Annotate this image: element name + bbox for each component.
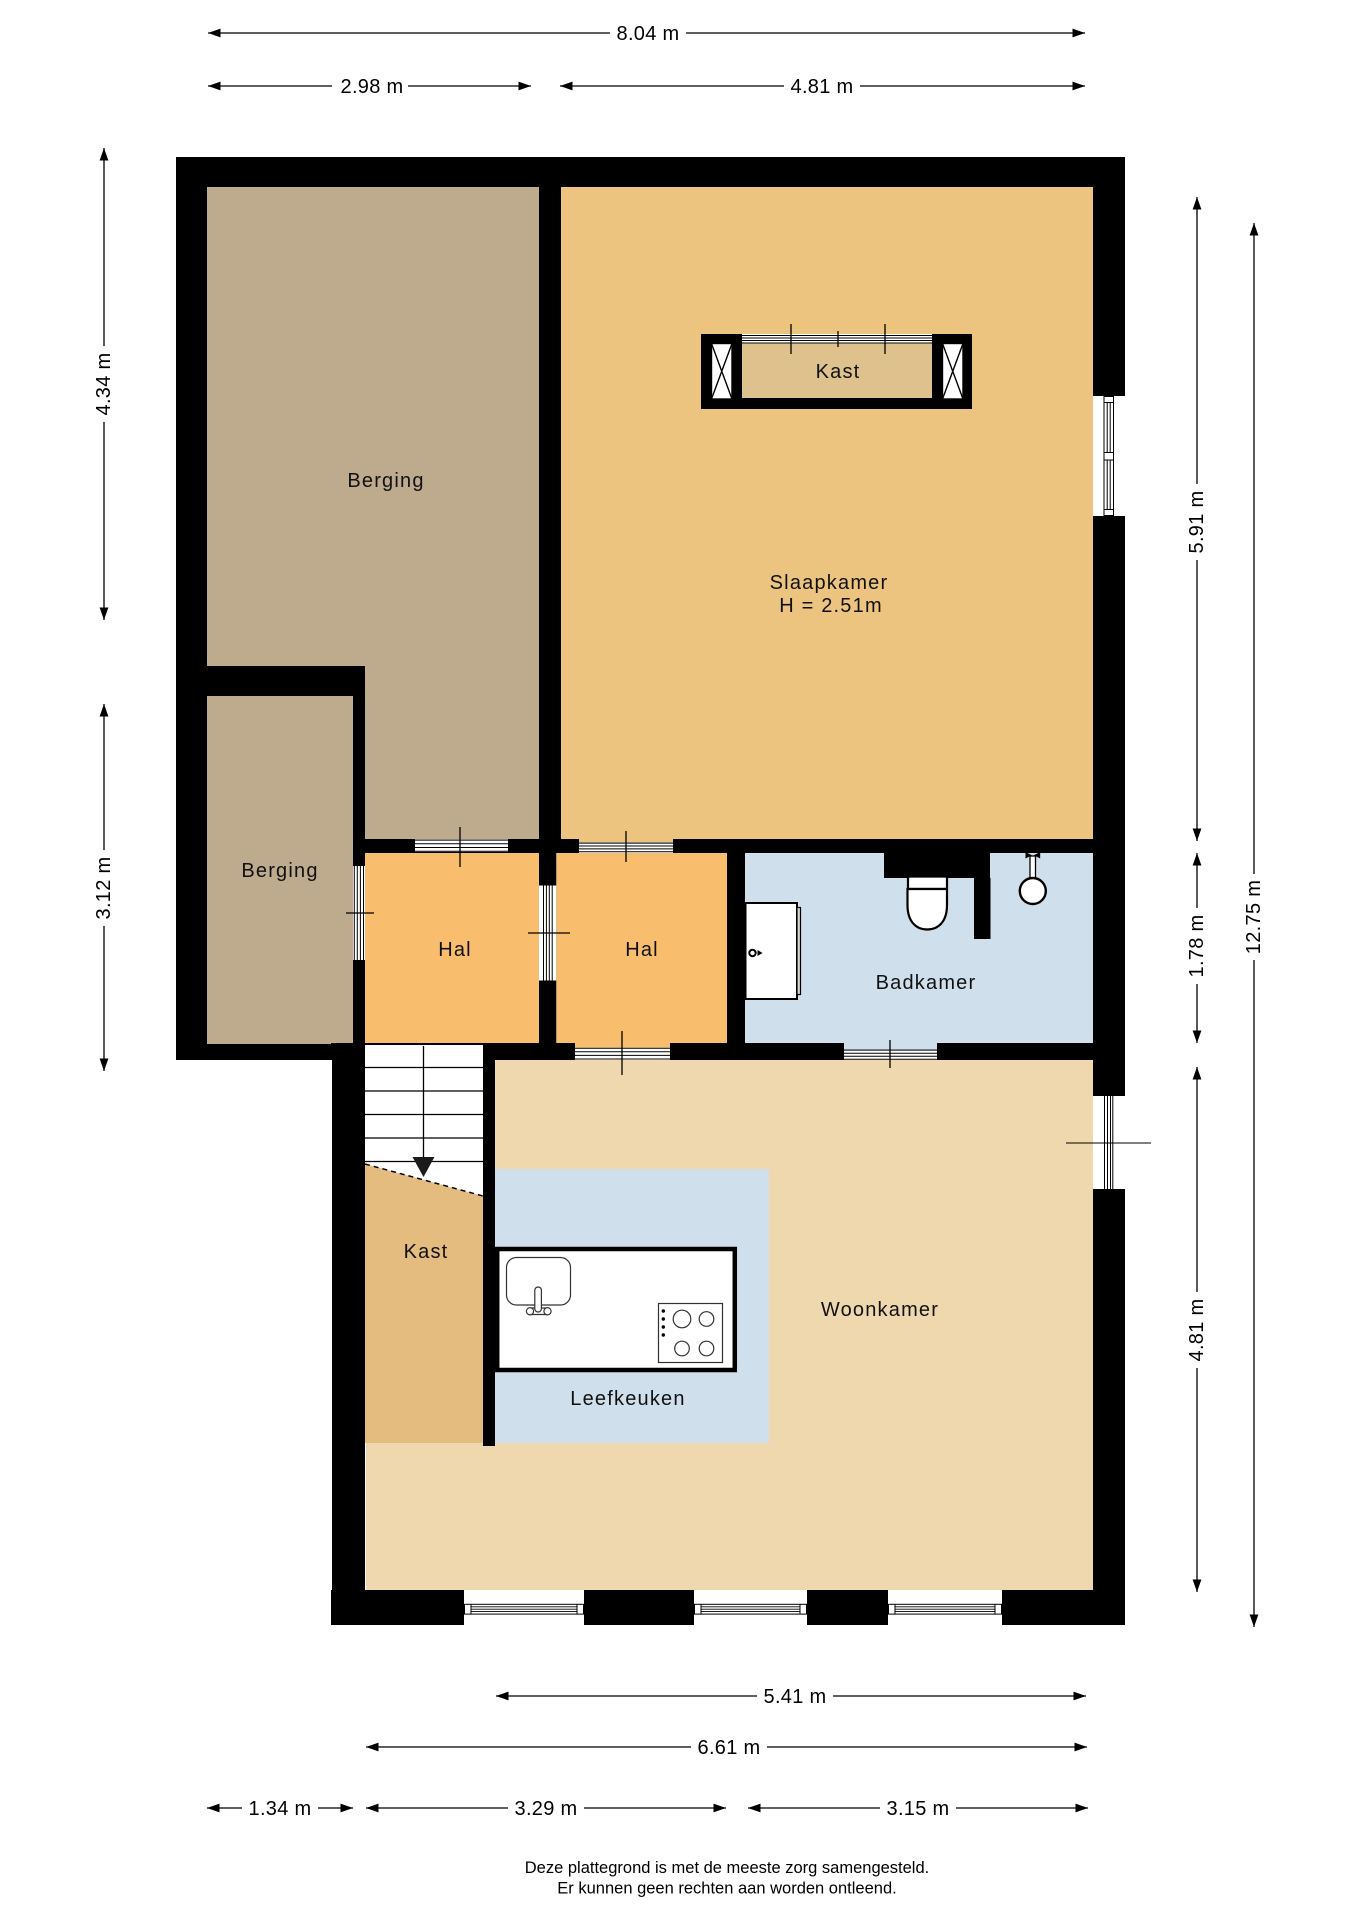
svg-text:Kast: Kast: [404, 1241, 449, 1263]
svg-text:6.61 m: 6.61 m: [698, 1737, 761, 1759]
svg-text:Hal: Hal: [625, 939, 659, 961]
svg-text:Hal: Hal: [438, 939, 472, 961]
svg-text:8.04 m: 8.04 m: [617, 23, 680, 45]
svg-text:Deze plattegrond is met de mee: Deze plattegrond is met de meeste zorg s…: [525, 1859, 929, 1877]
svg-text:4.81 m: 4.81 m: [1186, 1299, 1208, 1362]
svg-text:4.34 m: 4.34 m: [93, 353, 115, 416]
svg-text:12.75 m: 12.75 m: [1243, 880, 1265, 954]
svg-text:3.15 m: 3.15 m: [887, 1798, 950, 1820]
svg-text:3.29 m: 3.29 m: [515, 1798, 578, 1820]
svg-text:Woonkamer: Woonkamer: [821, 1299, 939, 1321]
svg-text:Kast: Kast: [816, 361, 861, 383]
svg-text:1.34 m: 1.34 m: [249, 1798, 312, 1820]
svg-text:Slaapkamer: Slaapkamer: [770, 572, 889, 594]
svg-text:Berging: Berging: [241, 860, 318, 882]
svg-text:5.41 m: 5.41 m: [764, 1686, 827, 1708]
svg-text:H = 2.51m: H = 2.51m: [779, 595, 883, 617]
svg-text:2.98 m: 2.98 m: [341, 76, 404, 98]
svg-text:Berging: Berging: [347, 470, 424, 492]
svg-text:1.78 m: 1.78 m: [1186, 915, 1208, 978]
svg-text:4.81 m: 4.81 m: [791, 76, 854, 98]
svg-text:5.91 m: 5.91 m: [1186, 491, 1208, 554]
svg-text:Er kunnen geen rechten aan wor: Er kunnen geen rechten aan worden ontlee…: [557, 1880, 896, 1898]
svg-text:Leefkeuken: Leefkeuken: [570, 1388, 685, 1410]
svg-text:3.12 m: 3.12 m: [93, 857, 115, 920]
svg-text:Badkamer: Badkamer: [876, 972, 977, 994]
